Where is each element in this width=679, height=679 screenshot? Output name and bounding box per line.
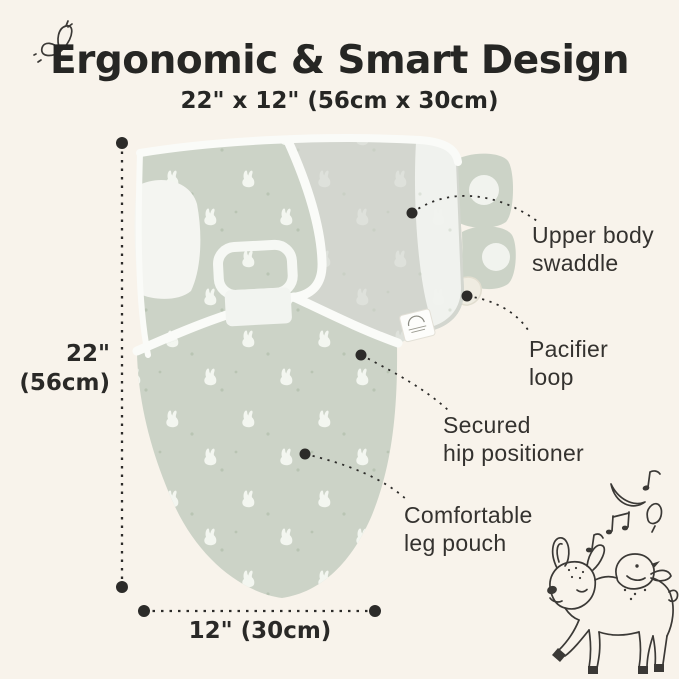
- page-title: Ergonomic & Smart Design: [0, 38, 679, 83]
- width-dimension-label: 12" (30cm): [144, 617, 376, 646]
- page-subtitle: 22" x 12" (56cm x 30cm): [0, 88, 679, 114]
- callout-pacifier-loop: Pacifier loop: [529, 335, 608, 391]
- product-infographic: Ergonomic & Smart Design 22" x 12" (56cm…: [0, 0, 679, 679]
- leg-pouch: [137, 299, 397, 598]
- callout-secured-hip-positioner: Secured hip positioner: [443, 411, 584, 467]
- callout-leader-pacifier-loop: [462, 291, 529, 331]
- fawn-back-spots: [624, 589, 646, 600]
- fawn-forehead-spots: [568, 567, 584, 579]
- armhole-patch: [135, 180, 201, 299]
- callout-comfortable-leg-pouch: Comfortable leg pouch: [404, 501, 533, 557]
- callout-upper-body-swaddle: Upper body swaddle: [532, 221, 654, 277]
- music-notes-icon: [586, 471, 662, 552]
- deer-bird-illustration: [546, 538, 678, 674]
- height-dimension-label: 22" (56cm): [18, 340, 110, 399]
- height-dimension-line: [116, 137, 128, 593]
- width-dimension-line: [138, 605, 381, 617]
